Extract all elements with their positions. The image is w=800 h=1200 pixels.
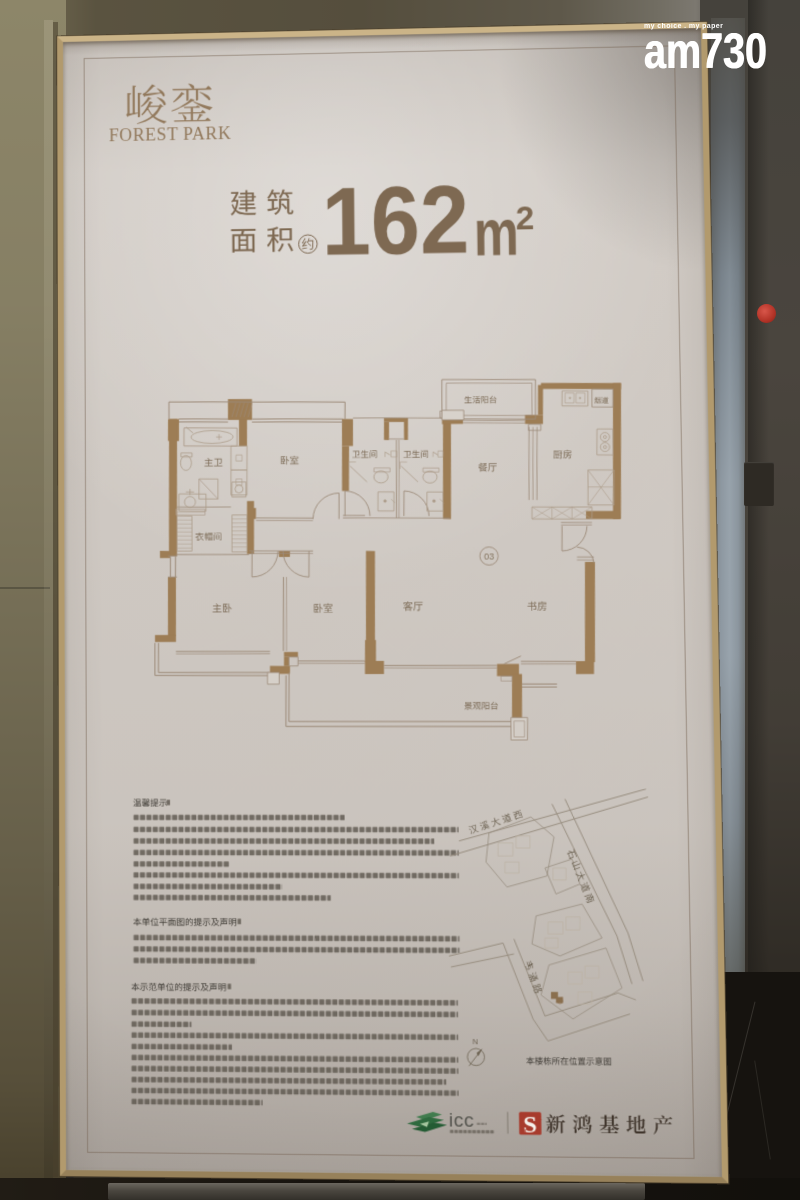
svg-text:m: m	[473, 196, 519, 270]
svg-text:N: N	[472, 1037, 478, 1047]
svg-text:03: 03	[484, 551, 494, 561]
svg-text:2: 2	[516, 200, 535, 237]
svg-text:162: 162	[321, 166, 470, 276]
svg-text:K: K	[536, 1115, 542, 1123]
svg-text:FOREST PARK: FOREST PARK	[109, 123, 232, 145]
svg-text:icc: icc	[449, 1109, 475, 1132]
svg-text:H: H	[521, 1129, 526, 1135]
